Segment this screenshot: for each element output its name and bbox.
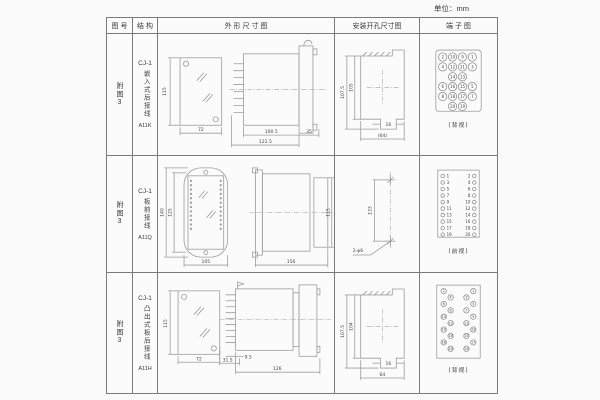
terminal-view-label: (前视) xyxy=(448,247,468,255)
terminal-number: 13 xyxy=(471,328,475,332)
terminal-number: 4 xyxy=(468,180,471,185)
terminal-circle xyxy=(441,187,445,191)
wire-hook xyxy=(238,282,244,289)
outline-cell-a11q: 140 125 105 115 xyxy=(158,156,335,273)
terminal-number: 20 xyxy=(448,347,452,351)
front-view: 140 125 105 xyxy=(160,168,228,267)
terminal-number: 19 xyxy=(460,104,466,109)
header-figure-no: 图 号 xyxy=(107,18,133,34)
side-view: 9.5 31.5 126 xyxy=(220,282,331,374)
terminal-number: 16 xyxy=(465,219,471,224)
terminal-number: 7 xyxy=(465,308,467,312)
terminal-circle xyxy=(441,207,445,211)
structure-model: CJ-1 xyxy=(138,295,152,302)
structure-model: CJ-1 xyxy=(138,60,152,67)
dim-cutout-outer-h: 107.5 xyxy=(340,86,346,99)
terminal-number: 15 xyxy=(447,219,453,224)
terminal-number: 17 xyxy=(447,226,453,231)
figure-number: 附图3 xyxy=(116,82,123,108)
terminal-number: 10 xyxy=(450,55,456,60)
structure-type: 板前接线 xyxy=(142,198,149,230)
terminal-number: 19 xyxy=(464,347,468,351)
dim-cutout-inner-h: 105 xyxy=(348,83,354,92)
terminal-number: 9 xyxy=(447,200,450,205)
terminal-number: 4 xyxy=(450,296,452,300)
outline-cell-a11k: 115 72 100.5 35 xyxy=(158,34,335,156)
header-structure: 结 构 xyxy=(133,18,158,34)
header-outline-dims: 外 形 尺 寸 图 xyxy=(158,18,335,34)
terminal-number: 10 xyxy=(465,200,471,205)
outline-drawing-a11k: 115 72 100.5 35 xyxy=(158,34,334,155)
terminal-number: 17 xyxy=(460,94,466,99)
terminal-number: 5 xyxy=(447,187,450,192)
dim-cutout-outer-h: 107.5 xyxy=(340,325,346,338)
outline-drawing-a11q: 140 125 105 115 xyxy=(158,156,334,272)
header-terminal-diagram: 端 子 图 xyxy=(420,18,498,34)
terminal-number: 2 xyxy=(443,289,445,293)
dim-slot-width: 16 xyxy=(385,122,391,128)
mounting-cell-a11k: 107.5 105 16 (64) xyxy=(335,34,420,156)
structure-code: A11K xyxy=(138,123,151,129)
terminal-number: 19 xyxy=(447,232,453,237)
dim-side-length: 156 xyxy=(287,259,296,265)
terminal-number: 13 xyxy=(447,213,453,218)
dimension-table: 图 号 结 构 外 形 尺 寸 图 安装开孔尺寸图 端 子 图 附图3 CJ-1… xyxy=(106,17,498,394)
dim-body-length: 100.5 xyxy=(265,129,278,135)
terminal-number: 6 xyxy=(443,302,445,306)
dim-slot-width: 16 xyxy=(385,361,391,367)
mounting-drawing-a11q: 133 2-φ6 xyxy=(335,156,419,272)
terminal-circle xyxy=(441,174,445,178)
structure-type: 凸出式板后接线 xyxy=(142,305,149,361)
terminal-circle xyxy=(441,194,445,198)
structure-type: 嵌入式后接线 xyxy=(142,70,149,118)
dim-back-length: 31.5 xyxy=(223,357,233,363)
terminal-number: 9 xyxy=(472,315,474,319)
dim-front-inner-h: 125 xyxy=(168,208,174,217)
terminal-circle xyxy=(441,220,445,224)
terminal-drawing-a11q: (前视) 1357911131517192468101214161820 xyxy=(420,156,497,272)
structure-cell-a11q: CJ-1 板前接线 A11Q xyxy=(133,156,158,273)
terminal-number: 12 xyxy=(448,321,452,325)
unit-label: 单位：mm xyxy=(434,3,469,14)
terminal-number: 1 xyxy=(447,173,450,178)
dim-hole-distance: 133 xyxy=(368,206,374,215)
dim-cutout-inner-h: 104 xyxy=(348,322,354,331)
terminal-circle xyxy=(473,187,477,191)
structure-code: A11Q xyxy=(138,235,152,241)
outline-drawing-a11h: 115 72 9.5 xyxy=(158,273,334,393)
terminal-number: 14 xyxy=(450,74,456,79)
terminal-circle xyxy=(441,226,445,230)
mounting-drawing-a11k: 107.5 105 16 (64) xyxy=(335,34,419,155)
terminal-number: 15 xyxy=(464,334,468,338)
structure-code: A11H xyxy=(138,366,151,372)
dim-front-outer-h: 140 xyxy=(160,208,166,217)
structure-cell-a11h: CJ-1 凸出式板后接线 A11H xyxy=(133,273,158,394)
terminal-number: 3 xyxy=(447,180,450,185)
dim-front-height: 115 xyxy=(162,87,168,96)
terminal-circle xyxy=(441,213,445,217)
terminal-number: 7 xyxy=(447,193,450,198)
front-view: 115 72 xyxy=(163,291,220,364)
dim-front-width: 72 xyxy=(196,356,202,362)
terminal-number: 20 xyxy=(450,104,456,109)
hole-spec-label: 2-φ6 xyxy=(353,248,364,254)
terminal-number: 16 xyxy=(450,84,456,89)
dim-cutout-width: (64) xyxy=(378,133,388,139)
terminal-number: 18 xyxy=(442,341,446,345)
figure-number: 附图3 xyxy=(116,201,123,227)
header-mounting-holes: 安装开孔尺寸图 xyxy=(335,18,420,34)
terminal-circle xyxy=(473,174,477,178)
dim-cutout-width: 64 xyxy=(380,372,386,378)
terminal-number: 13 xyxy=(460,74,466,79)
structure-cell-a11k: CJ-1 嵌入式后接线 A11K xyxy=(133,34,158,156)
document-page: 单位：mm 图 号 结 构 外 形 尺 寸 图 安装开孔尺寸图 端 子 图 附图… xyxy=(0,0,600,400)
figure-number: 附图3 xyxy=(116,320,123,346)
terminal-cell-a11k: (背视) 2109141211314136161558181772019 xyxy=(420,34,498,156)
terminal-number: 10 xyxy=(442,315,446,319)
terminal-circle xyxy=(441,181,445,185)
terminal-circle xyxy=(473,220,477,224)
terminal-number: 11 xyxy=(460,64,466,69)
terminal-number: 18 xyxy=(465,226,471,231)
figure-cell-a11k: 附图3 xyxy=(107,34,133,156)
terminal-view-label: (背视) xyxy=(448,366,468,374)
terminal-number: 12 xyxy=(450,64,456,69)
structure-model: CJ-1 xyxy=(138,188,152,195)
terminal-number: 17 xyxy=(471,341,475,345)
dim-front-width: 72 xyxy=(198,127,204,133)
figure-cell-a11q: 附图3 xyxy=(107,156,133,273)
terminal-number: 12 xyxy=(465,206,471,211)
side-view: 100.5 35 122.5 xyxy=(230,40,327,147)
terminal-number: 5 xyxy=(472,302,474,306)
terminal-number: 1 xyxy=(472,289,474,293)
terminal-number: 16 xyxy=(448,334,452,338)
side-view: 115 156 xyxy=(249,168,333,267)
outline-cell-a11h: 115 72 9.5 xyxy=(158,273,335,394)
terminal-circle xyxy=(473,213,477,217)
terminal-view-label: (背视) xyxy=(448,121,468,129)
dim-side-height: 115 xyxy=(325,208,331,217)
terminal-number: 8 xyxy=(468,193,471,198)
terminal-number: 20 xyxy=(465,232,471,237)
terminal-number: 11 xyxy=(447,206,453,211)
dim-pin-length: 9.5 xyxy=(245,354,252,360)
terminal-circle xyxy=(473,226,477,230)
mounting-cell-a11q: 133 2-φ6 xyxy=(335,156,420,273)
terminal-drawing-a11h: (背视) 2610141848121620371115191591317 xyxy=(420,273,497,393)
terminal-number: 6 xyxy=(468,187,471,192)
terminal-number: 11 xyxy=(464,321,468,325)
terminal-number: 2 xyxy=(468,173,471,178)
terminal-number: 14 xyxy=(465,213,471,218)
dim-body-length: 126 xyxy=(273,366,282,372)
dim-flange: 35 xyxy=(306,129,312,135)
terminal-circle xyxy=(473,194,477,198)
terminal-circle xyxy=(473,233,477,237)
terminal-circle xyxy=(473,200,477,204)
terminal-number: 8 xyxy=(450,308,452,312)
figure-cell-a11h: 附图3 xyxy=(107,273,133,394)
terminal-circle xyxy=(441,233,445,237)
dim-total-length: 122.5 xyxy=(259,139,272,145)
terminal-number: 18 xyxy=(450,94,456,99)
wire-hook xyxy=(304,40,312,46)
front-view: 115 72 xyxy=(162,58,222,135)
dim-front-width: 105 xyxy=(202,259,211,265)
terminal-number: 14 xyxy=(442,328,446,332)
terminal-number: 15 xyxy=(460,84,466,89)
terminal-cell-a11h: (背视) 2610141848121620371115191591317 xyxy=(420,273,498,394)
terminal-circle xyxy=(473,181,477,185)
mounting-cell-a11h: 107.5 104 16 64 xyxy=(335,273,420,394)
terminal-circle xyxy=(473,207,477,211)
dim-front-height: 115 xyxy=(163,319,169,328)
terminal-circle xyxy=(441,200,445,204)
terminal-number: 3 xyxy=(465,296,467,300)
mounting-drawing-a11h: 107.5 104 16 64 xyxy=(335,273,419,393)
terminal-drawing-a11k: (背视) 2109141211314136161558181772019 xyxy=(420,34,497,155)
terminal-cell-a11q: (前视) 1357911131517192468101214161820 xyxy=(420,156,498,273)
